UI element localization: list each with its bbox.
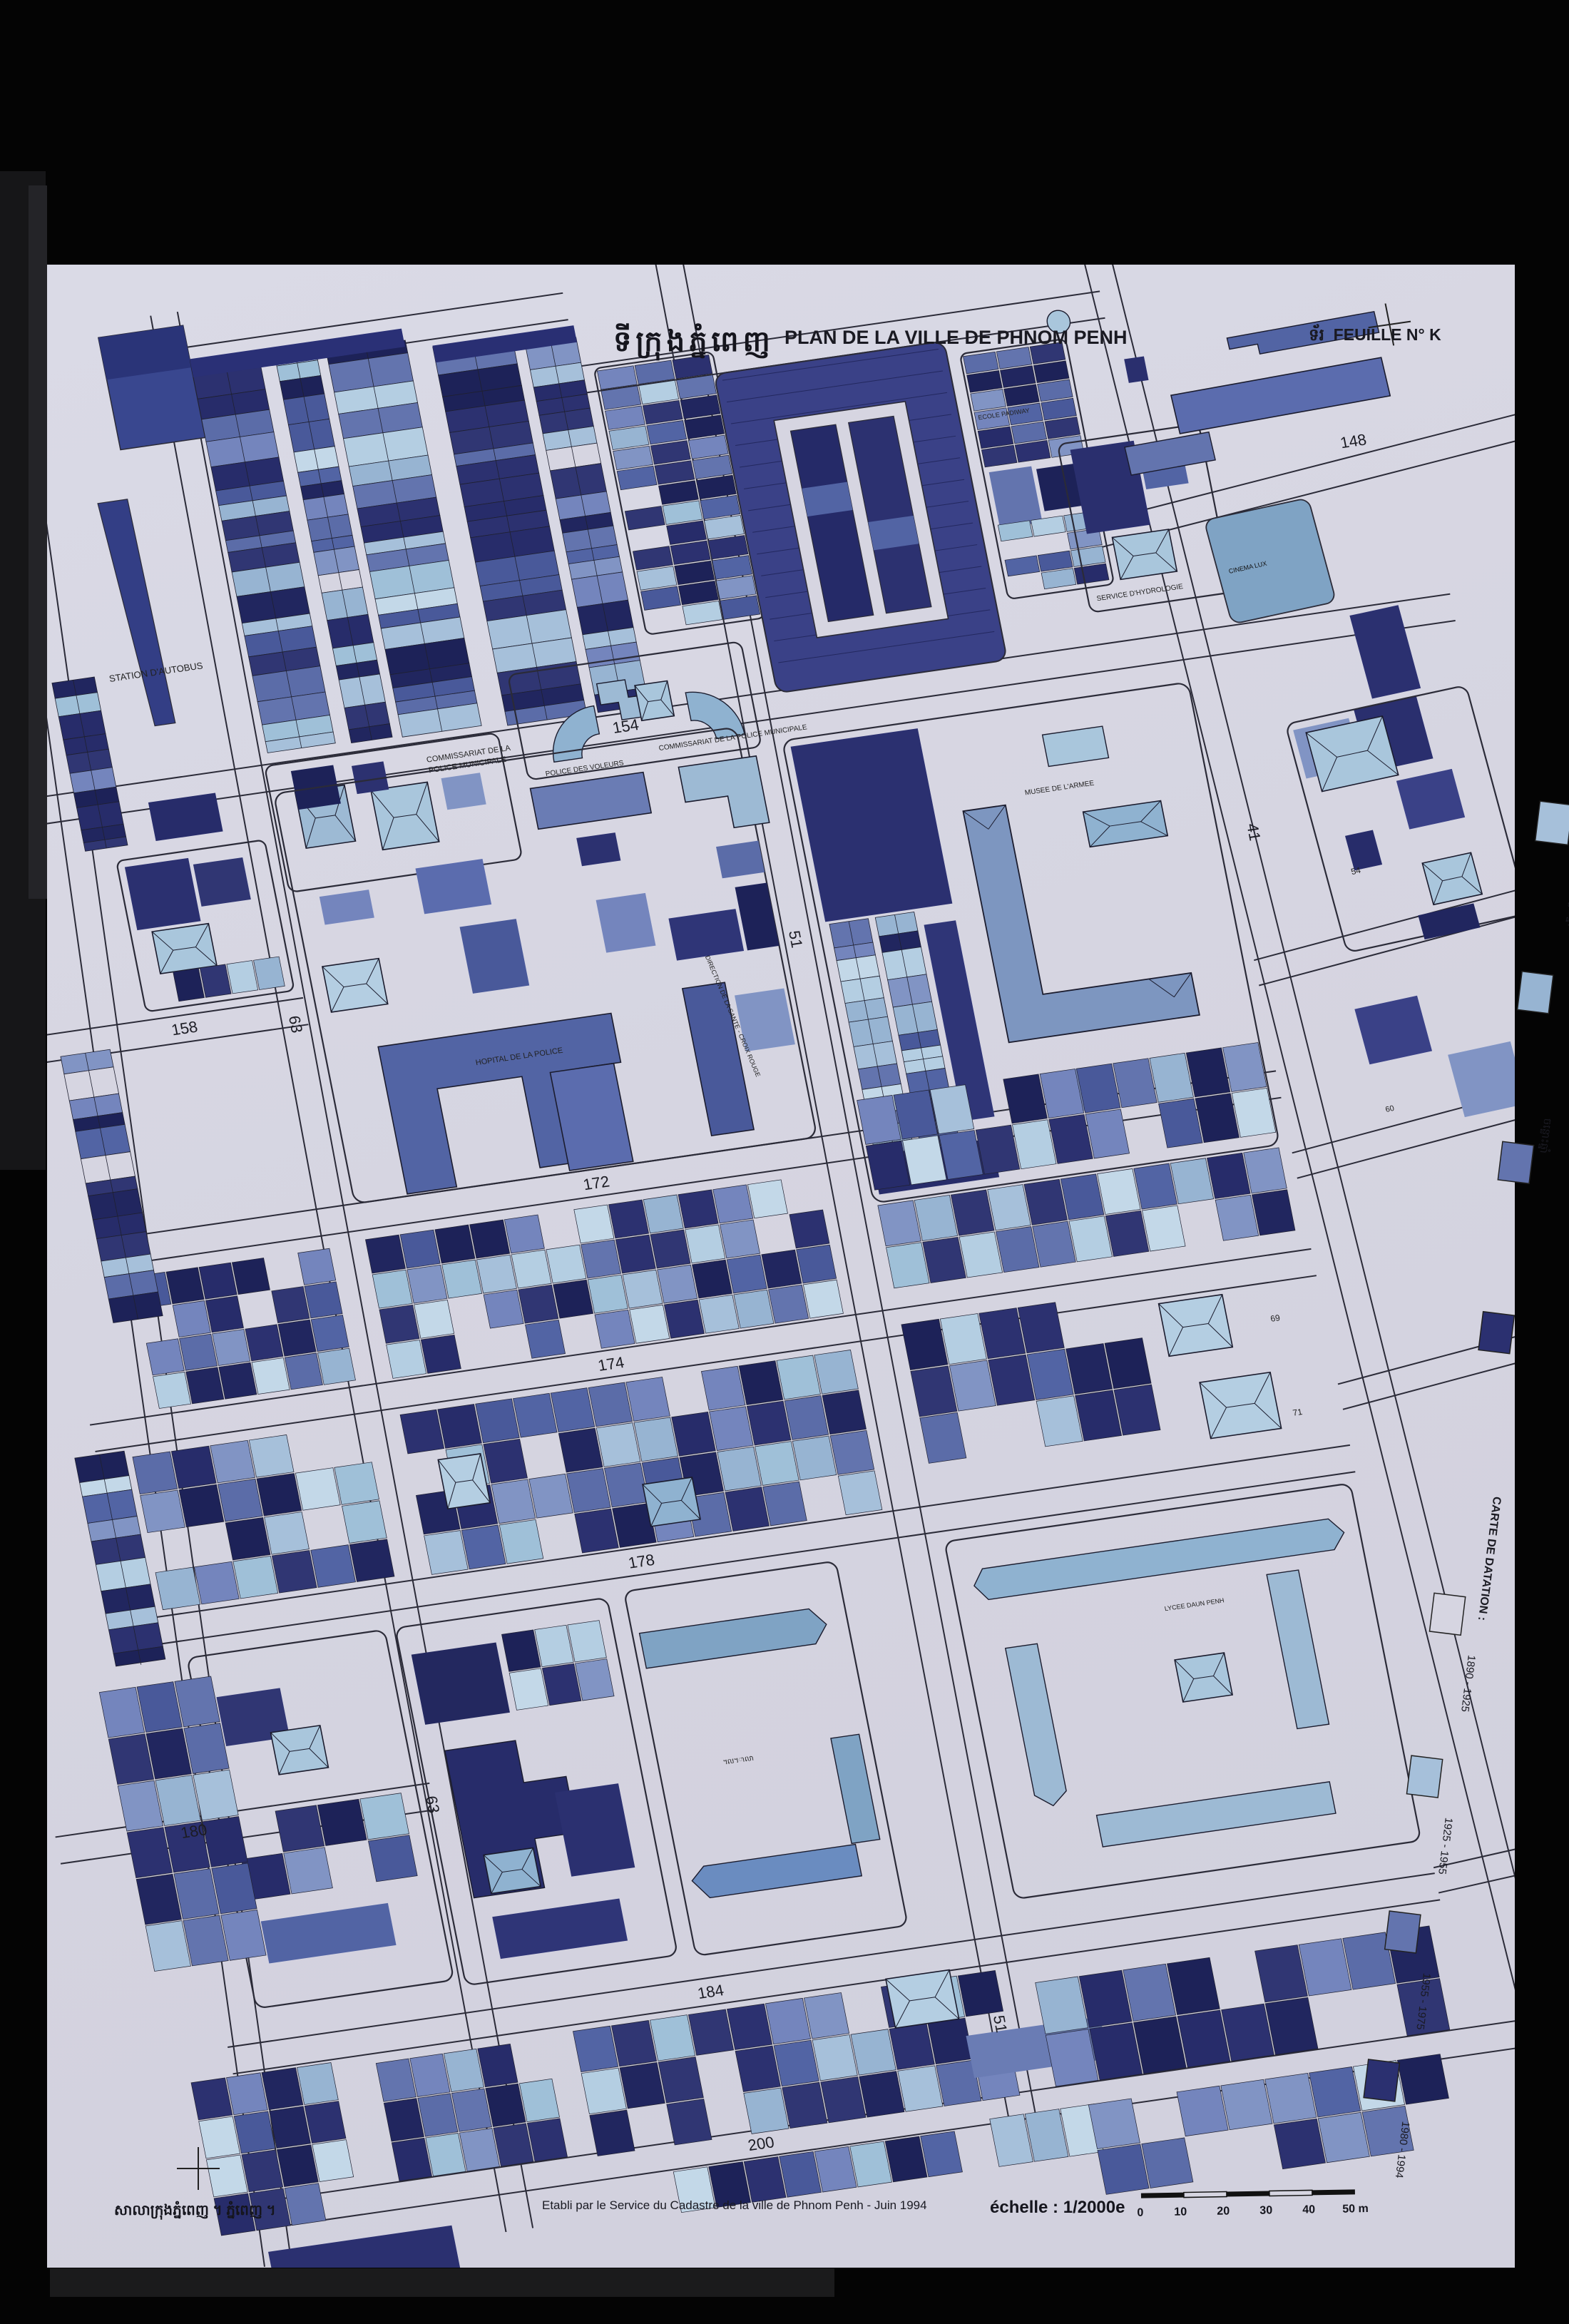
svg-text:30: 30 [1259,2204,1272,2216]
svg-text:174: 174 [596,1353,625,1375]
svg-text:41: 41 [1243,822,1264,842]
svg-text:51: 51 [785,929,806,949]
svg-text:158: 158 [170,1018,199,1039]
svg-text:50 m: 50 m [1342,2203,1369,2216]
svg-text:172: 172 [581,1173,610,1194]
svg-text:63: 63 [422,1795,443,1815]
svg-text:PLAN DE LA VILLE DE PHNOM PENH: PLAN DE LA VILLE DE PHNOM PENH [784,327,1128,348]
svg-text:51: 51 [990,2014,1011,2034]
svg-text:Etabli par le Service du Cadas: Etabli par le Service du Cadastre de la … [542,2198,927,2212]
svg-text:148: 148 [1339,430,1368,452]
svg-text:échelle : 1/2000e: échelle : 1/2000e [990,2198,1125,2217]
svg-text:180: 180 [179,1820,208,1842]
svg-text:154: 154 [611,715,640,737]
svg-text:63: 63 [285,1014,306,1034]
svg-text:ទ័រ FEUILLE N° K: ទ័រ FEUILLE N° K [1309,324,1441,344]
svg-text:20: 20 [1217,2205,1230,2217]
svg-text:សាលាក្រុងភ្នំពេញ ។ ភ្នំពេញ ។: សាលាក្រុងភ្នំពេញ ។ ភ្នំពេញ ។ [114,2201,276,2220]
svg-text:ទីក្រុងភ្នំពេញ: ទីក្រុងភ្នំពេញ [613,323,775,361]
svg-text:40: 40 [1302,2203,1315,2216]
svg-text:0: 0 [1137,2207,1143,2219]
svg-text:10: 10 [1174,2206,1187,2218]
svg-text:178: 178 [627,1551,656,1572]
svg-text:200: 200 [747,2133,776,2154]
svg-text:184: 184 [696,1981,725,2002]
